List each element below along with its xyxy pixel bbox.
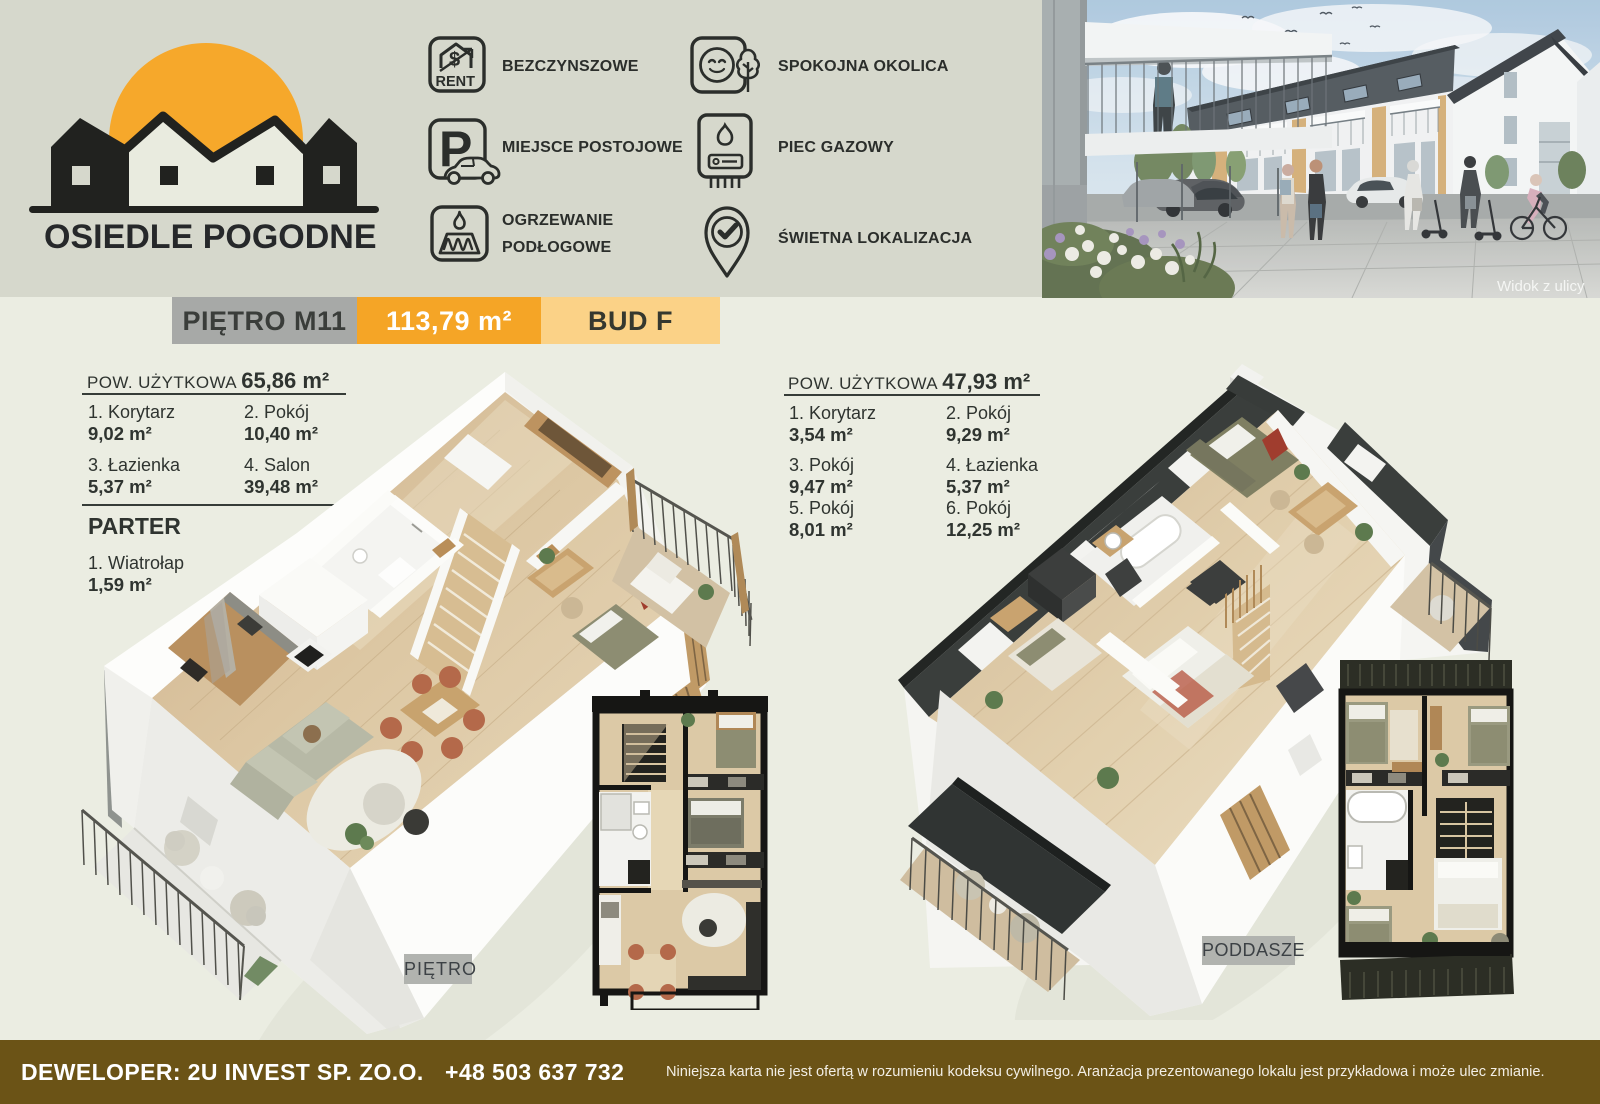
svg-text:Widok z ulicy: Widok z ulicy: [1497, 278, 1585, 295]
svg-text:OSIEDLE POGODNE: OSIEDLE POGODNE: [44, 218, 377, 256]
svg-text:RENT: RENT: [436, 74, 476, 90]
